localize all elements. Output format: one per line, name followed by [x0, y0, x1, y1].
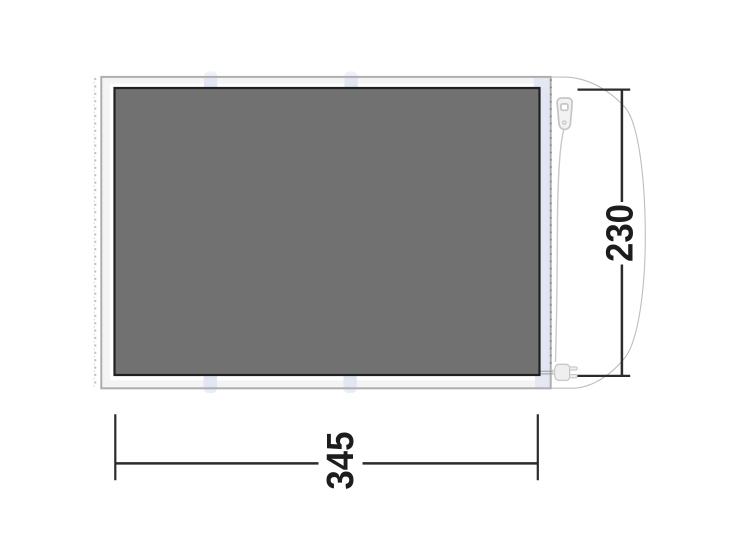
svg-text:345: 345 [320, 432, 362, 490]
svg-text:230: 230 [600, 204, 642, 262]
